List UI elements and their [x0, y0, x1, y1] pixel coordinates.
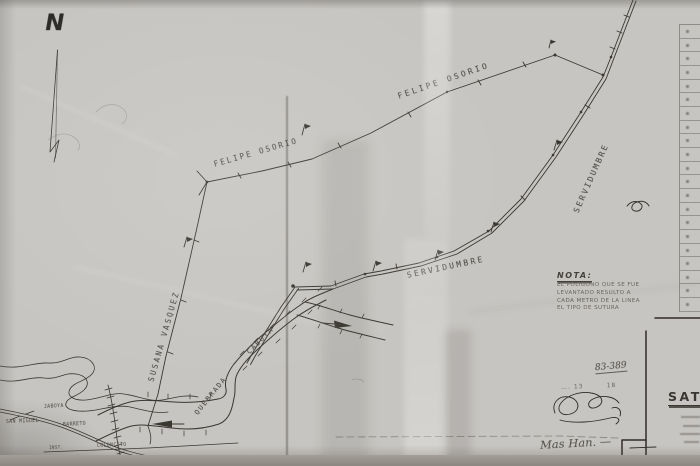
table-cell-mark: [686, 139, 689, 142]
inset-label-inst: INST.: [49, 444, 64, 450]
boundary-table-rows: [680, 25, 700, 312]
boundary-data-table: [679, 24, 700, 312]
table-row: [680, 121, 700, 135]
table-row: [680, 148, 700, 162]
table-row: [680, 107, 700, 121]
table-cell-mark: [686, 153, 689, 156]
table-cell-mark: [686, 167, 689, 170]
table-cell-mark: [686, 303, 689, 306]
table-cell-mark: [686, 98, 689, 101]
faint-scribbles: [48, 105, 364, 382]
flag-pennants: [187, 40, 612, 288]
table-row: [680, 39, 700, 53]
nota-line: LEVANTADO RESULTO A: [557, 290, 669, 298]
illegible-text-line: [683, 425, 700, 427]
pencil-scribble: [627, 201, 649, 211]
table-cell-mark: [686, 126, 689, 129]
table-cell-mark: [686, 276, 689, 279]
table-cell-mark: [686, 208, 689, 211]
boundary-line-felipe-osorio: [197, 55, 603, 195]
title-block-name: SATO: [668, 389, 700, 406]
table-cell-mark: [686, 180, 689, 183]
nota-line: CADA METRO DE LA LINEA: [557, 298, 669, 306]
table-row: [680, 284, 700, 298]
map-linework: [0, 0, 700, 466]
table-cell-mark: [686, 289, 689, 292]
illegible-text-line: [681, 416, 700, 418]
table-row: [680, 216, 700, 230]
nota-line: EL TIPO DE SUTURA: [557, 305, 669, 313]
table-row: [680, 230, 700, 244]
table-cell-mark: [686, 194, 689, 197]
table-row: [680, 203, 700, 217]
table-cell-mark: [686, 262, 689, 265]
table-cell-mark: [686, 30, 689, 33]
table-row: [680, 52, 700, 66]
table-row: [680, 175, 700, 189]
flow-arrows: [152, 321, 352, 428]
servidumbre-road: [295, 0, 636, 290]
table-row: [680, 271, 700, 285]
table-cell-mark: [686, 44, 689, 47]
table-cell-mark: [686, 71, 689, 74]
table-cell-mark: [686, 221, 689, 224]
branch-road: [247, 287, 299, 365]
illegible-text-line: [680, 433, 700, 435]
table-row: [680, 298, 700, 312]
table-cell-mark: [686, 249, 689, 252]
table-row: [680, 80, 700, 94]
table-row: [680, 244, 700, 258]
table-row: [680, 25, 700, 39]
inset-label-coloncito: COLONCITO: [97, 443, 127, 449]
table-row: [680, 189, 700, 203]
nota-title: NOTA:: [557, 271, 592, 282]
illegible-text-line: [684, 441, 699, 443]
table-row: [680, 134, 700, 148]
table-row: [680, 162, 700, 176]
nota-line: EL POLIGONO QUE SE FUE: [557, 282, 669, 290]
inset-label-jaboya: JABOYA: [44, 404, 64, 410]
table-cell-mark: [686, 235, 689, 238]
scanned-survey-map-photo: N FELIPE OSORIO FELIPE OSORIO SERVIDUMBR…: [0, 0, 700, 466]
nota-block: NOTA: EL POLIGONO QUE SE FUE LEVANTADO R…: [557, 263, 669, 313]
table-row: [680, 66, 700, 80]
table-row: [680, 257, 700, 271]
quebrada-stream: [96, 287, 393, 441]
table-row: [680, 93, 700, 107]
table-cell-mark: [686, 57, 689, 60]
north-arrow-needle: [50, 50, 59, 162]
table-cell-mark: [686, 85, 689, 88]
table-cell-mark: [686, 112, 689, 115]
